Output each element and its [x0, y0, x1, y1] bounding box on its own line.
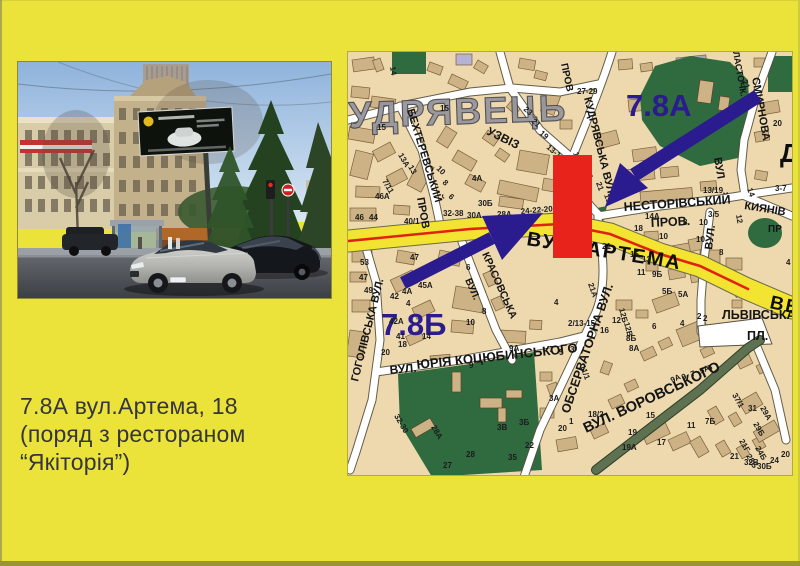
window: [119, 204, 126, 216]
building-number: 15: [440, 104, 449, 113]
building-number: 4А: [472, 174, 482, 183]
building-number: 6: [652, 322, 657, 331]
slide-top-edge: [0, 0, 800, 1]
building-number: 4А: [402, 287, 412, 296]
building-number: 4: [554, 298, 559, 307]
caption-line-2: (поряд з рестораном: [20, 420, 330, 448]
building-number: 30А: [467, 211, 482, 220]
building-number: 18: [398, 340, 407, 349]
building-number: 47: [410, 253, 419, 262]
building-number: 7Б: [705, 417, 715, 426]
location-photo: [18, 62, 331, 298]
park-building: [452, 372, 461, 392]
building-number: 3: [570, 345, 575, 354]
window: [25, 199, 32, 212]
building-number: 20: [781, 450, 790, 459]
park-building: [498, 408, 506, 422]
building-number: 19: [628, 428, 637, 437]
building-number: 14А: [645, 212, 660, 221]
building-number: 4: [680, 319, 685, 328]
building-number: 18: [634, 224, 643, 233]
window: [161, 204, 168, 216]
address-caption: 7.8А вул.Артема, 18 (поряд з рестораном …: [20, 392, 330, 476]
building-number: 40/1: [404, 217, 420, 226]
building-number: 35: [508, 453, 517, 462]
building-number: 13: [642, 255, 651, 264]
building-number: 13/19: [703, 186, 724, 195]
building-number: 9Б: [652, 270, 662, 279]
window: [133, 180, 140, 192]
building-number: 20: [773, 119, 782, 128]
building-number: 6: [466, 263, 471, 272]
building-number: 4: [406, 299, 411, 308]
park-building: [480, 398, 502, 408]
map-building: [754, 170, 767, 181]
building-number: 22: [525, 441, 534, 450]
building-number: 27: [443, 461, 452, 470]
building-number: 32-38: [443, 209, 464, 218]
building-number: 31: [748, 404, 757, 413]
window: [161, 180, 168, 192]
building-number: 21: [730, 452, 739, 461]
building-number: 15: [377, 123, 386, 132]
map-building: [732, 300, 742, 308]
slide-bottom-edge: [0, 561, 800, 566]
window: [161, 156, 168, 168]
window: [133, 156, 140, 168]
street-label: ВУЛ.: [389, 361, 417, 377]
caption-line-1: 7.8А вул.Артема, 18: [20, 392, 330, 420]
building-number: 19А: [622, 443, 637, 452]
slide-left-edge: [0, 0, 2, 566]
building-number: 42: [390, 292, 399, 301]
building-number: 10: [699, 218, 708, 227]
building-number: 1: [569, 417, 574, 426]
building-number: 16: [600, 326, 609, 335]
billboard-marker: [553, 155, 592, 258]
map-building: [540, 372, 552, 381]
building-number: 3/5: [708, 210, 720, 219]
window: [38, 199, 45, 212]
street-label: ПЛ.: [747, 329, 768, 343]
map-building: [618, 59, 633, 70]
building-number: 8: [719, 248, 724, 257]
building-number: 2: [697, 312, 702, 321]
building-number: 14: [422, 332, 431, 341]
building-number: 5: [559, 348, 564, 357]
building-number: 11: [637, 268, 646, 277]
map-building: [530, 320, 542, 330]
window: [133, 204, 140, 216]
building-number: 10: [696, 235, 705, 244]
building-number: 42А: [389, 317, 404, 326]
blue-kiosk: [118, 224, 131, 248]
building-number: 53: [360, 258, 369, 267]
building-number: 5Б: [662, 287, 672, 296]
window: [51, 199, 58, 212]
building-number: 30Б: [478, 199, 493, 208]
building-number: 3В: [497, 423, 507, 432]
building-number: 45А: [418, 281, 433, 290]
window: [25, 176, 32, 189]
building-number: 3-7: [775, 184, 787, 193]
window: [189, 180, 196, 192]
building-number: 24: [770, 456, 779, 465]
map-building: [660, 166, 679, 178]
window: [64, 199, 71, 212]
window: [147, 180, 154, 192]
building-number: 44: [369, 213, 378, 222]
street-label: Д: [780, 138, 792, 168]
building-number: 18/2: [588, 410, 604, 419]
window: [119, 108, 126, 120]
street-label: ЛЬВІВСЬКА: [722, 308, 792, 322]
window: [175, 180, 182, 192]
street-label: ПР: [768, 224, 782, 235]
building-number: 7: [549, 345, 554, 354]
building-number: 46А: [375, 192, 390, 201]
window: [147, 156, 154, 168]
window: [25, 153, 32, 166]
building-number: 27-29: [577, 87, 598, 96]
building-number: 11: [687, 421, 696, 430]
building-number: 3А: [549, 394, 559, 403]
window: [103, 199, 110, 212]
building-number: 2/13-15: [568, 319, 596, 328]
map-building: [352, 57, 375, 72]
building-number: 21: [602, 242, 611, 251]
building-number: 20: [558, 424, 567, 433]
building-number: 2: [703, 314, 708, 323]
map-building: [636, 310, 648, 318]
window: [147, 204, 154, 216]
building-number: 9А: [509, 344, 519, 353]
window: [38, 176, 45, 189]
building-number: 4: [786, 258, 791, 267]
building-number: 47: [359, 273, 368, 282]
building-number: 17: [657, 438, 666, 447]
building-number: 8А: [629, 344, 639, 353]
window: [90, 199, 97, 212]
building-number: 28: [466, 450, 475, 459]
building-number: 3Б: [519, 418, 529, 427]
window: [119, 180, 126, 192]
map-building: [640, 62, 653, 72]
building-number: 46: [355, 213, 364, 222]
map-building: [393, 205, 410, 215]
map-marker-label: 7.8А: [626, 88, 691, 123]
caption-line-3: “Якіторія”): [20, 448, 330, 476]
building-number: 10: [466, 318, 475, 327]
building-number: 10: [659, 232, 668, 241]
park-building: [697, 80, 714, 104]
window: [119, 156, 126, 168]
slide: УДРЯВЕЦЬБЕХТЕРЕВСЬКИЙПРОВУЗВІЗПРОВКУДРЯВ…: [0, 0, 800, 566]
building-number: 5А: [678, 290, 688, 299]
map-building: [456, 54, 472, 65]
park-building: [506, 390, 522, 398]
window: [119, 132, 126, 144]
building-number: 8: [482, 307, 487, 316]
building-number: 15: [646, 411, 655, 420]
building-number: 49: [364, 286, 373, 295]
building-number: 8: [683, 218, 688, 227]
building-number: 20: [381, 348, 390, 357]
location-map: УДРЯВЕЦЬБЕХТЕРЕВСЬКИЙПРОВУЗВІЗПРОВКУДРЯВ…: [348, 52, 792, 475]
building-number: 15: [630, 250, 639, 259]
building-number: 9: [469, 361, 474, 370]
